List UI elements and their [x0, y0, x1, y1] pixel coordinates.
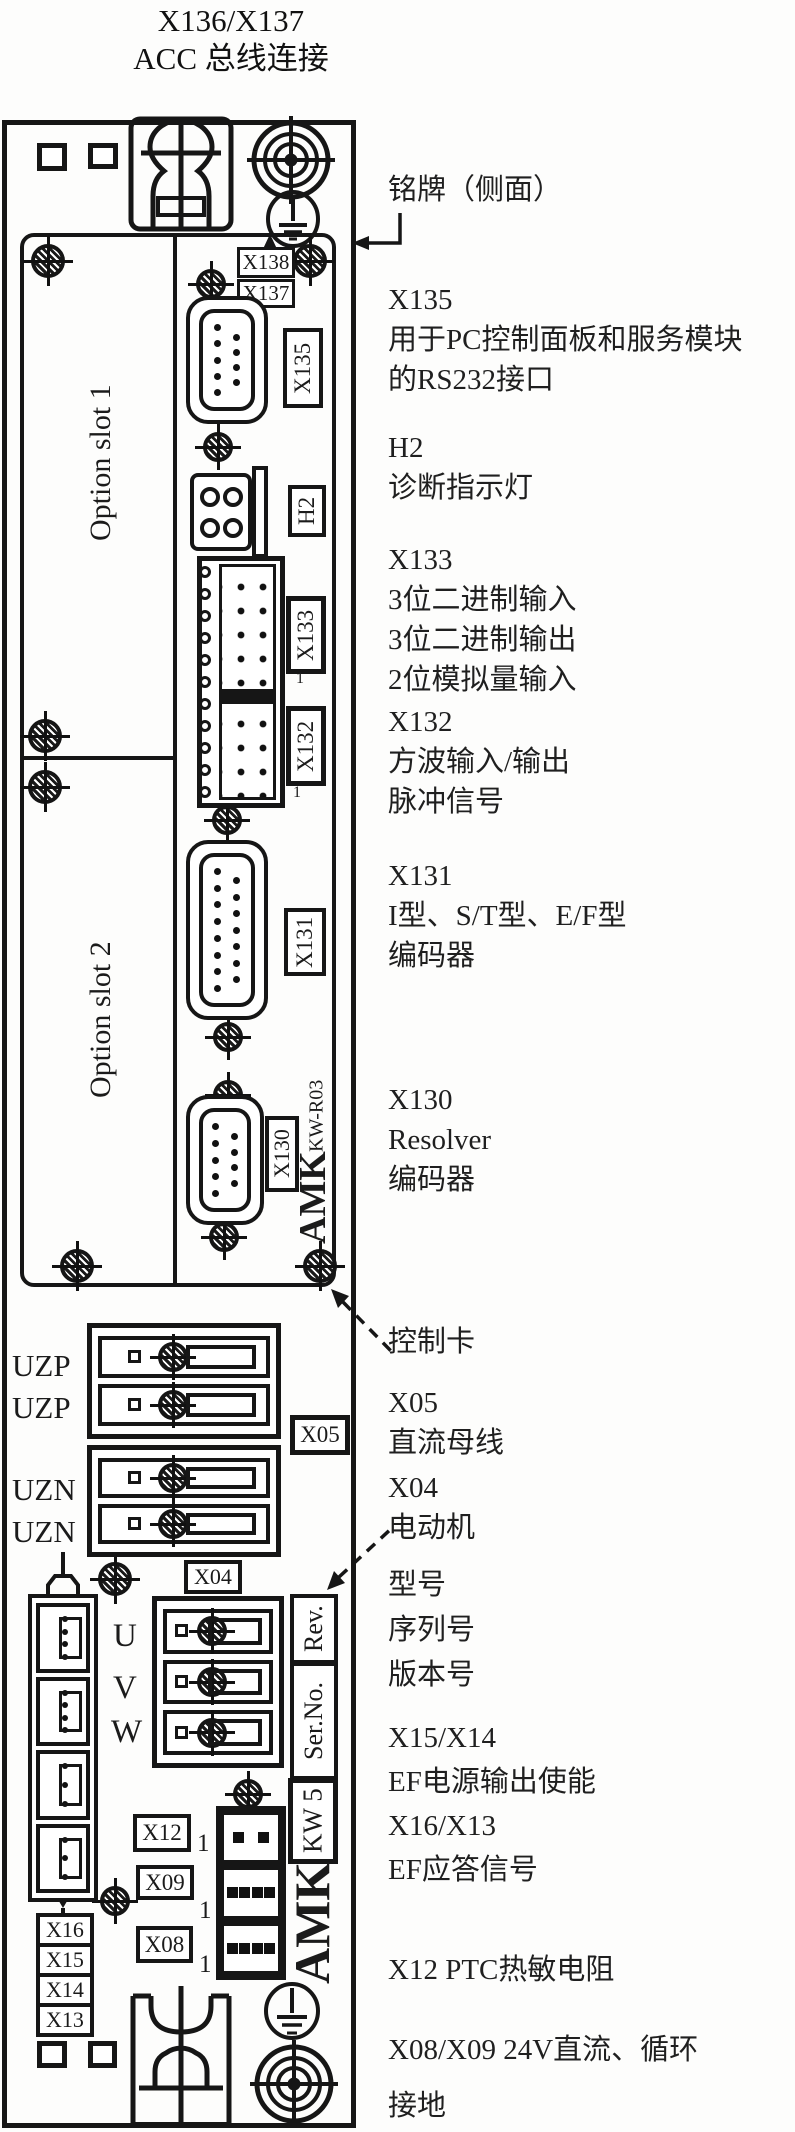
x16-x13-stack: X16 X15 X14 X13 [36, 1913, 94, 2033]
x133-label: X133 [286, 596, 326, 674]
led-icon [223, 487, 243, 507]
signal-connector [36, 1824, 90, 1894]
uzp-terminal-block [87, 1323, 281, 1439]
motor-terminal-row-v [163, 1660, 273, 1705]
card-divider-vertical [173, 235, 177, 1285]
screw-icon [196, 269, 226, 299]
x08-label: X08 [136, 1926, 193, 1963]
signal-connector [36, 1750, 90, 1820]
serial-number-field: Ser.No. [290, 1662, 338, 1780]
uzp-terminal-row [98, 1336, 270, 1378]
x133-pin-field [219, 564, 276, 692]
annotation-nameplate: 铭牌（侧面） [388, 170, 562, 210]
diagram-page: X136/X137 ACC 总线连接 Option slot 1 Option … [0, 0, 795, 2132]
x08-connector [222, 1924, 280, 1973]
rev-field: Rev. [290, 1594, 338, 1664]
screw-icon [28, 770, 62, 804]
annotation-ground: 接地 [388, 2086, 446, 2126]
x16-label: X16 [36, 1913, 94, 1947]
front-square-2 [88, 143, 118, 169]
x09-connector [222, 1868, 280, 1917]
screw-icon [100, 1886, 130, 1916]
screw-icon [212, 805, 242, 835]
uzn-label-1: UZN [12, 1472, 76, 1508]
annotation-x130: X130 Resolver 编码器 [388, 1080, 491, 1200]
x13-label: X13 [36, 2003, 94, 2037]
screw-icon [31, 244, 65, 278]
x130-db9-connector [186, 1095, 264, 1225]
x05-label: X05 [290, 1415, 350, 1455]
x135-db9-connector [186, 296, 268, 424]
screw-icon [98, 1562, 132, 1596]
db9-inner [199, 1108, 251, 1212]
uvw-terminal-block [152, 1596, 284, 1768]
x09-label: X09 [136, 1865, 194, 1900]
screw-icon [158, 1463, 188, 1493]
front-square-4 [88, 2041, 117, 2068]
x135-label: X135 [283, 328, 323, 408]
x132-pin-field [219, 701, 276, 800]
annotation-x135: X135 用于PC控制面板和服务模块 的RS232接口 [388, 280, 742, 400]
h2-led-block [190, 473, 252, 551]
phase-v-label: V [113, 1670, 137, 1707]
left-signal-connector-column [28, 1594, 98, 1902]
screw-icon [203, 432, 233, 462]
uzn-terminal-block [87, 1445, 281, 1557]
x138-label: X138 [237, 247, 295, 278]
phase-u-label: U [113, 1618, 137, 1655]
x132-pin1-marker: 1 [293, 784, 301, 802]
h2-block-tab [252, 466, 268, 558]
annotation-x15-x14: X15/X14 EF电源输出使能 X16/X13 EF应答信号 [388, 1716, 596, 1892]
x132-label: X132 [286, 706, 326, 786]
annotation-x04: X04 电动机 [388, 1468, 475, 1548]
front-square-3 [37, 2041, 67, 2068]
uzp-terminal-row [98, 1384, 270, 1426]
x08-pin1-marker: 1 [199, 1951, 212, 1979]
connector-divider [219, 692, 276, 701]
x12-pin1-marker: 1 [197, 1830, 210, 1858]
annotation-x133: X133 3位二进制输入 3位二进制输出 2位模拟量输入 [388, 540, 577, 700]
screw-icon [233, 1779, 263, 1809]
screw-icon [28, 719, 62, 753]
card-model-label: KW-R03 [303, 1080, 331, 1152]
screw-icon [158, 1390, 188, 1420]
db9-inner [199, 309, 255, 411]
x12-connector [222, 1813, 280, 1862]
phase-w-label: W [111, 1714, 142, 1751]
amk-logo-bottom: AMK [288, 1862, 336, 1984]
screw-icon [60, 1249, 94, 1283]
led-icon [200, 518, 220, 538]
annotation-nameplate-fields: 型号 序列号 版本号 [388, 1563, 475, 1698]
uzn-terminal-row [98, 1458, 270, 1498]
motor-terminal-row-u [163, 1609, 273, 1654]
option-slot-1-label: Option slot 1 [80, 338, 122, 588]
screw-icon [158, 1509, 188, 1539]
diagram-title: X136/X137 ACC 总线连接 [81, 2, 381, 78]
uzp-label-2: UZP [12, 1390, 71, 1426]
annotation-x12-ptc: X12 PTC热敏电阻 [388, 1950, 614, 1990]
x133-pin1-marker: 1 [296, 670, 304, 688]
annotation-x132: X132 方波输入/输出 脉冲信号 [388, 702, 570, 822]
x09-pin1-marker: 1 [199, 1897, 212, 1925]
x131-db15-connector [186, 840, 268, 1020]
x15-label: X15 [36, 1943, 94, 1977]
annotation-control-card: 控制卡 [388, 1322, 475, 1362]
screw-icon [209, 1222, 239, 1252]
title-line-2: ACC 总线连接 [81, 40, 381, 78]
amk-logo-card: AMK [292, 1152, 334, 1244]
uzn-label-2: UZN [12, 1514, 76, 1550]
uzn-terminal-row [98, 1504, 270, 1544]
db15-inner [199, 853, 255, 1007]
connector-scallops [199, 561, 215, 803]
nameplate-arrow [352, 213, 400, 250]
signal-connector [36, 1677, 90, 1747]
annotation-x08-x09: X08/X09 24V直流、循环 [388, 2030, 698, 2070]
power-rating-field: KW 5 [288, 1778, 338, 1864]
x04-label: X04 [184, 1560, 242, 1594]
screw-icon [158, 1342, 188, 1372]
signal-connector [36, 1603, 90, 1673]
annotation-x05: X05 直流母线 [388, 1383, 504, 1463]
h2-label: H2 [288, 485, 326, 537]
led-icon [223, 518, 243, 538]
motor-terminal-row-w [163, 1710, 273, 1755]
front-square-1 [37, 143, 67, 171]
x12-label: X12 [133, 1814, 191, 1852]
x12-x09-x08-connector-column [216, 1806, 286, 1980]
annotation-h2: H2 诊断指示灯 [388, 428, 533, 508]
x14-label: X14 [36, 1973, 94, 2007]
option-slot-2-label: Option slot 2 [80, 872, 122, 1167]
title-line-1: X136/X137 [81, 2, 381, 40]
uzp-label-1: UZP [12, 1348, 71, 1384]
screw-icon [303, 1249, 337, 1283]
x133-x132-connector [197, 556, 285, 808]
x131-label: X131 [284, 908, 326, 976]
screw-icon [293, 244, 327, 278]
annotation-x131: X131 I型、S/T型、E/F型 编码器 [388, 856, 626, 976]
led-icon [200, 487, 220, 507]
screw-icon [213, 1022, 243, 1052]
